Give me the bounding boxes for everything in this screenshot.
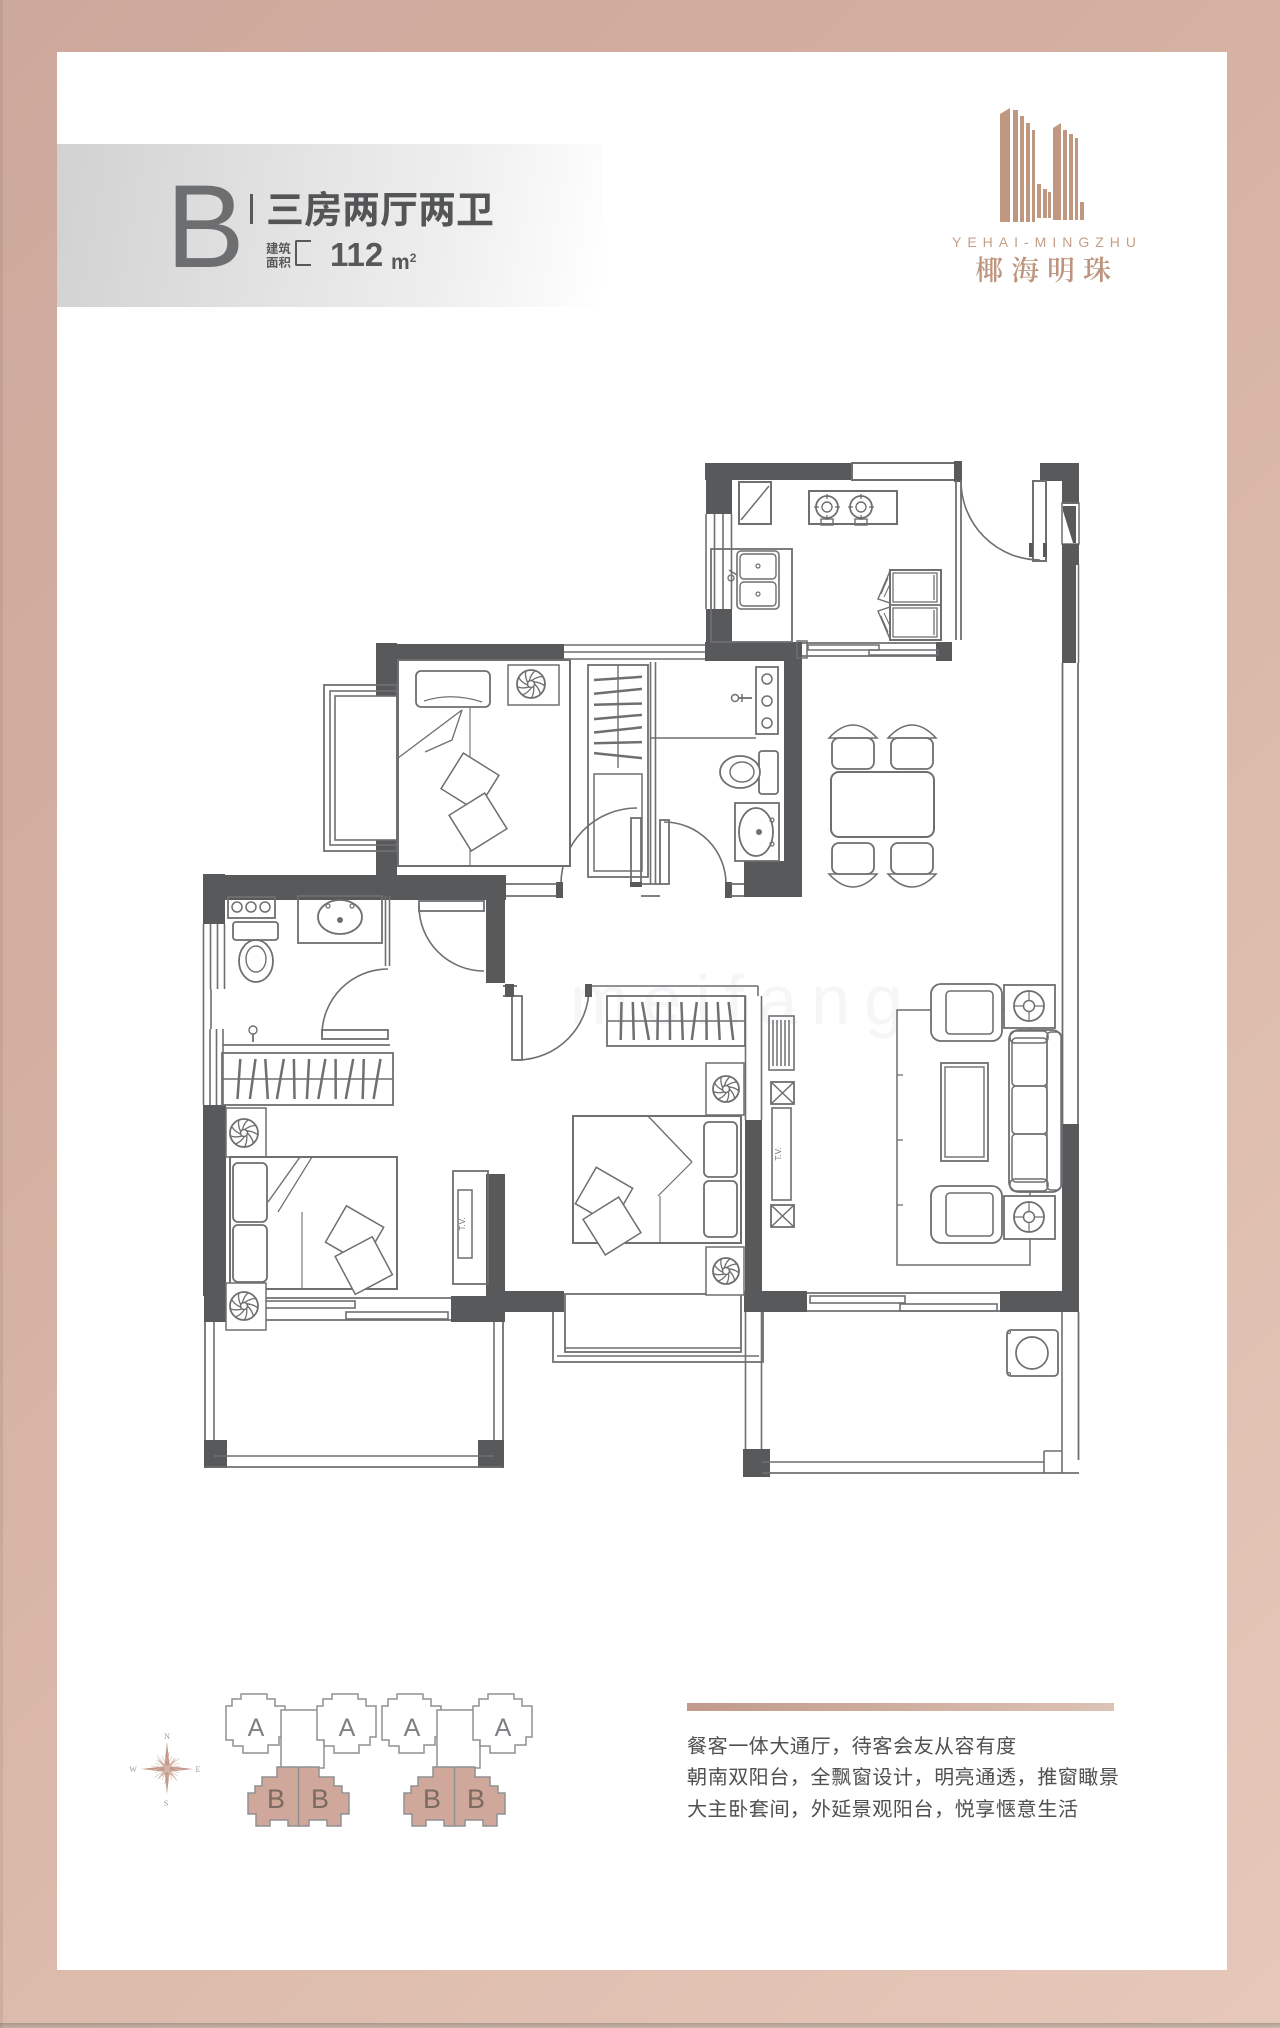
svg-text:A: A: [339, 1714, 356, 1742]
svg-text:T.V.: T.V.: [774, 1147, 783, 1160]
svg-text:A: A: [404, 1714, 421, 1742]
svg-text:B: B: [311, 1784, 329, 1814]
svg-text:A: A: [248, 1714, 265, 1742]
svg-text:T.V.: T.V.: [458, 1217, 467, 1230]
svg-text:B: B: [267, 1784, 285, 1814]
svg-text:B: B: [467, 1784, 485, 1814]
svg-text:S: S: [164, 1799, 168, 1808]
svg-text:A: A: [495, 1714, 512, 1742]
svg-text:N: N: [164, 1732, 170, 1741]
svg-text:W: W: [129, 1765, 137, 1774]
svg-text:E: E: [196, 1765, 201, 1774]
svg-text:B: B: [423, 1784, 441, 1814]
